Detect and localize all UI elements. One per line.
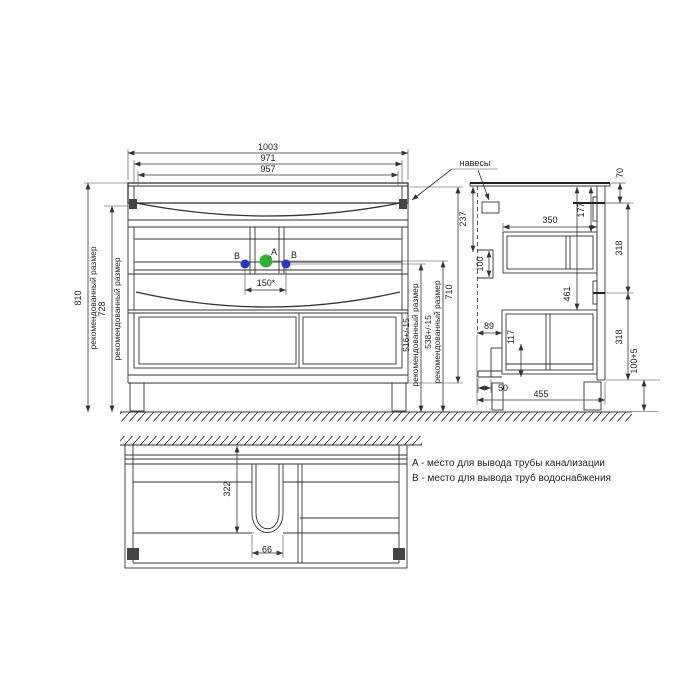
dim-322: 322 [222, 481, 232, 496]
dim-728-note: рекомендованный размер [112, 257, 122, 361]
dim-100: 100 [475, 256, 485, 271]
dim-117: 117 [506, 330, 516, 344]
dim-height-728: 728 [97, 301, 107, 316]
dim-350: 350 [542, 215, 557, 225]
marker-label-b-left: B [234, 251, 240, 261]
dim-318-top: 318 [614, 240, 624, 255]
dim-height-810: 810 [73, 290, 83, 305]
dim-70: 70 [615, 168, 625, 178]
dim-height-710: 710 [444, 284, 454, 299]
dim-width-957: 957 [260, 164, 275, 174]
dim-810-note: рекомендованный размер [88, 246, 98, 350]
marker-label-b-right: B [291, 250, 297, 260]
hanger-bracket-right [399, 199, 407, 209]
plan-view-dimensions: 322 99 [222, 446, 283, 558]
legend: A - место для вывода трубы канализации B… [412, 457, 611, 484]
dim-width-971: 971 [260, 153, 275, 163]
dim-461: 461 [562, 286, 572, 301]
dim-318-bottom: 318 [614, 329, 624, 344]
pipe-cutout [252, 464, 283, 533]
dim-89: 89 [484, 321, 494, 331]
dim-516-note: рекомендованный размер [410, 283, 420, 387]
dim-455: 455 [533, 389, 548, 399]
front-leg-right [392, 383, 406, 411]
front-view-linework [128, 183, 408, 411]
side-view-dimensions: 237 100 350 177 70 461 89 117 50 4 [458, 168, 660, 412]
hanger-bracket-left [129, 199, 137, 209]
dim-50: 50 [498, 383, 508, 393]
front-leg-left [130, 383, 144, 411]
legend-line-b: B - место для вывода труб водоснабжения [412, 472, 611, 484]
pipe-outlet-markers: B A B [234, 247, 297, 269]
ground-hatch [120, 412, 632, 422]
plan-leg-left [127, 548, 139, 560]
dim-538-note: рекомендованный размер [432, 280, 442, 384]
dim-177: 177 [576, 202, 586, 217]
dim-legs-100-5: 100+5 [629, 348, 639, 373]
hanger-side [482, 202, 499, 213]
vanity-dimension-drawing: B A B 1003 971 957 150* 810 рекомендован… [0, 0, 700, 700]
technical-drawing-page: B A B 1003 971 957 150* 810 рекомендован… [0, 0, 700, 700]
dim-237: 237 [458, 211, 468, 226]
hangers-label: навесы [460, 158, 491, 168]
back-panel-slot-top [593, 197, 597, 221]
marker-label-a: A [271, 247, 277, 257]
legend-line-a: A - место для вывода трубы канализации [412, 457, 605, 469]
dim-99: 99 [262, 544, 272, 554]
dim-spacing-150: 150* [257, 278, 276, 288]
dim-width-1003: 1003 [258, 142, 278, 152]
hangers-callout: навесы [412, 158, 498, 200]
water-supply-marker-left [241, 260, 250, 269]
wall-hatch [120, 436, 422, 445]
plan-leg-right [393, 548, 405, 560]
side-view-linework [470, 183, 610, 410]
side-leg-back [584, 382, 601, 410]
